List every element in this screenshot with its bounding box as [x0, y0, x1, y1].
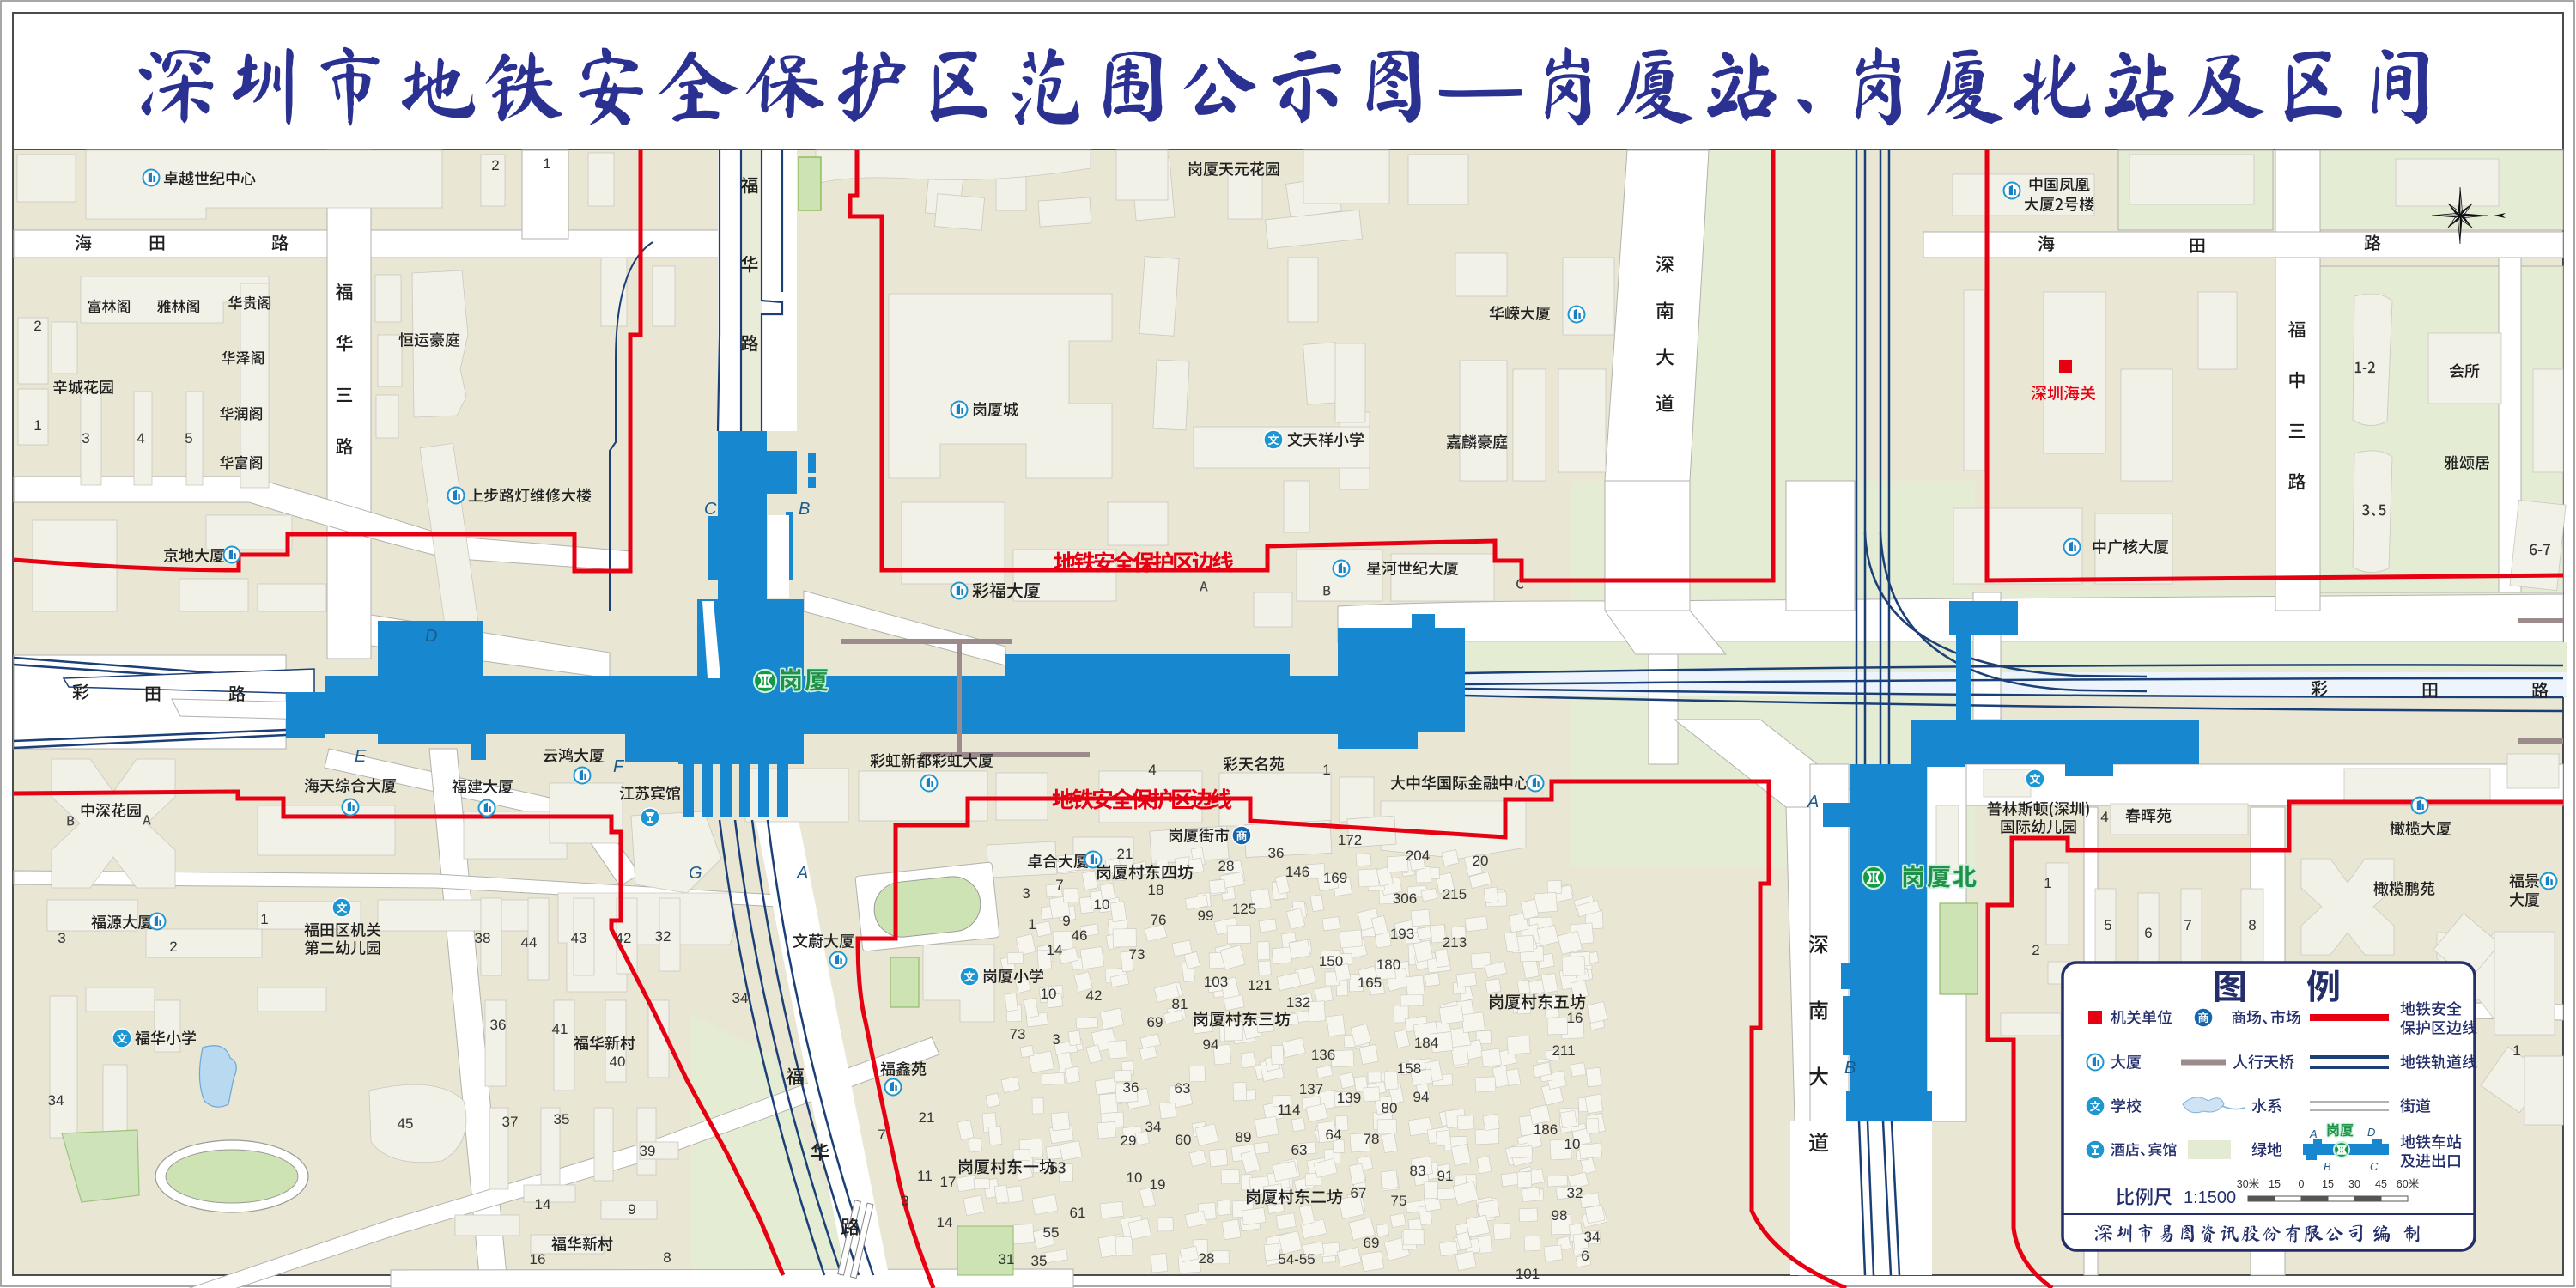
svg-text:A: A [2309, 1127, 2318, 1140]
svg-text:63: 63 [1291, 1142, 1308, 1158]
svg-text:61: 61 [1070, 1205, 1086, 1221]
svg-text:136: 136 [1311, 1047, 1335, 1063]
svg-text:30: 30 [2348, 1178, 2360, 1190]
svg-text:14: 14 [1047, 942, 1063, 958]
svg-text:99: 99 [1198, 908, 1214, 924]
svg-text:4: 4 [1148, 762, 1156, 778]
svg-text:17: 17 [940, 1174, 957, 1190]
svg-text:35: 35 [1031, 1253, 1048, 1269]
svg-text:158: 158 [1397, 1060, 1421, 1077]
svg-text:6: 6 [1581, 1248, 1589, 1264]
svg-text:7: 7 [2184, 917, 2191, 933]
svg-text:41: 41 [552, 1021, 568, 1037]
svg-text:94: 94 [1413, 1089, 1430, 1105]
svg-text:80: 80 [1382, 1100, 1398, 1116]
svg-text:2: 2 [2032, 942, 2039, 958]
svg-text:4: 4 [137, 430, 144, 447]
svg-text:306: 306 [1393, 890, 1417, 907]
svg-text:94: 94 [1203, 1036, 1219, 1053]
svg-text:D: D [425, 627, 437, 646]
svg-text:89: 89 [1236, 1129, 1252, 1145]
svg-text:45: 45 [2375, 1178, 2387, 1190]
svg-text:73: 73 [1010, 1026, 1026, 1042]
svg-text:8: 8 [2248, 917, 2256, 933]
svg-text:75: 75 [1391, 1193, 1407, 1209]
svg-text:E: E [355, 747, 367, 766]
svg-text:73: 73 [1129, 946, 1145, 963]
svg-text:165: 165 [1358, 975, 1382, 991]
svg-text:9: 9 [1062, 913, 1070, 929]
svg-text:67: 67 [1351, 1185, 1367, 1201]
svg-text:46: 46 [1072, 927, 1088, 944]
svg-text:103: 103 [1204, 974, 1228, 990]
svg-text:10: 10 [1564, 1136, 1581, 1152]
svg-text:1: 1 [33, 417, 41, 434]
svg-text:7: 7 [878, 1127, 885, 1143]
svg-text:60米: 60米 [2397, 1178, 2420, 1190]
svg-text:1:1500: 1:1500 [2184, 1188, 2236, 1207]
svg-text:55: 55 [1043, 1224, 1060, 1241]
svg-text:A: A [796, 864, 808, 883]
svg-text:C: C [704, 500, 717, 519]
svg-text:G: G [689, 864, 702, 883]
svg-text:28: 28 [1218, 858, 1235, 874]
svg-text:1: 1 [260, 911, 268, 927]
svg-text:B: B [2324, 1160, 2331, 1173]
svg-text:81: 81 [1172, 996, 1188, 1012]
svg-text:4: 4 [2100, 809, 2108, 825]
svg-text:98: 98 [1552, 1207, 1568, 1224]
svg-text:16: 16 [530, 1251, 546, 1267]
svg-text:180: 180 [1376, 957, 1400, 973]
svg-text:5: 5 [2104, 917, 2111, 933]
svg-text:11: 11 [917, 1168, 933, 1184]
svg-text:20: 20 [1473, 853, 1489, 869]
svg-text:78: 78 [1364, 1131, 1380, 1147]
svg-text:193: 193 [1390, 926, 1414, 942]
svg-text:45: 45 [398, 1115, 414, 1132]
svg-text:34: 34 [48, 1092, 64, 1109]
svg-text:1: 1 [1322, 762, 1330, 778]
svg-text:10: 10 [1094, 896, 1110, 913]
svg-text:21: 21 [919, 1109, 935, 1126]
svg-text:3: 3 [901, 1193, 908, 1209]
svg-text:B: B [799, 500, 810, 519]
svg-text:0: 0 [2299, 1178, 2305, 1190]
svg-text:39: 39 [640, 1143, 656, 1159]
svg-text:204: 204 [1406, 848, 1430, 864]
svg-text:1: 1 [1028, 916, 1036, 933]
svg-text:184: 184 [1414, 1035, 1438, 1051]
svg-text:14: 14 [937, 1214, 953, 1230]
svg-text:16: 16 [1567, 1010, 1583, 1026]
svg-text:213: 213 [1443, 934, 1467, 951]
svg-text:D: D [2367, 1126, 2375, 1139]
svg-text:42: 42 [616, 930, 632, 946]
svg-text:101: 101 [1516, 1266, 1540, 1282]
svg-text:64: 64 [1326, 1127, 1342, 1143]
svg-text:29: 29 [1121, 1133, 1137, 1149]
svg-text:3: 3 [82, 430, 89, 447]
svg-text:63: 63 [1175, 1080, 1191, 1097]
svg-text:169: 169 [1323, 870, 1347, 886]
svg-text:10: 10 [1041, 986, 1057, 1002]
svg-text:32: 32 [655, 928, 671, 945]
svg-text:8: 8 [663, 1249, 671, 1266]
svg-text:76: 76 [1151, 912, 1167, 928]
svg-text:1: 1 [2044, 875, 2051, 891]
svg-text:15: 15 [2322, 1178, 2334, 1190]
svg-text:34: 34 [732, 990, 749, 1006]
svg-text:146: 146 [1285, 864, 1309, 880]
svg-text:132: 132 [1286, 994, 1310, 1011]
svg-text:37: 37 [502, 1114, 519, 1130]
svg-text:2: 2 [491, 157, 499, 173]
svg-text:54-55: 54-55 [1278, 1251, 1315, 1267]
svg-text:215: 215 [1443, 886, 1467, 902]
svg-text:60: 60 [1176, 1132, 1192, 1148]
svg-text:91: 91 [1437, 1168, 1454, 1184]
svg-text:1: 1 [2512, 1042, 2520, 1059]
svg-text:69: 69 [1147, 1014, 1163, 1030]
svg-text:2: 2 [169, 939, 177, 955]
svg-text:35: 35 [554, 1111, 570, 1127]
svg-text:10: 10 [1127, 1170, 1143, 1186]
svg-text:83: 83 [1410, 1163, 1426, 1179]
svg-text:186: 186 [1534, 1121, 1558, 1138]
svg-text:19: 19 [1150, 1176, 1166, 1193]
svg-text:34: 34 [1145, 1119, 1162, 1135]
svg-text:32: 32 [1567, 1185, 1583, 1201]
svg-text:125: 125 [1232, 901, 1256, 917]
svg-text:28: 28 [1199, 1250, 1215, 1267]
svg-text:40: 40 [610, 1054, 626, 1070]
svg-text:38: 38 [475, 930, 491, 946]
svg-text:5: 5 [185, 430, 192, 447]
svg-text:69: 69 [1364, 1235, 1380, 1251]
svg-text:172: 172 [1338, 832, 1362, 848]
svg-text:C: C [2370, 1160, 2379, 1173]
svg-text:14: 14 [535, 1196, 551, 1212]
svg-text:43: 43 [571, 930, 587, 946]
svg-text:31: 31 [999, 1251, 1015, 1267]
svg-text:B: B [1844, 1059, 1856, 1078]
svg-text:21: 21 [1117, 846, 1133, 862]
svg-text:9: 9 [628, 1201, 635, 1218]
svg-text:F: F [613, 757, 625, 776]
svg-text:36: 36 [490, 1017, 507, 1033]
svg-text:150: 150 [1319, 953, 1343, 969]
svg-text:34: 34 [1584, 1229, 1601, 1245]
svg-text:A: A [1807, 793, 1819, 811]
svg-text:114: 114 [1277, 1102, 1300, 1118]
svg-text:121: 121 [1248, 977, 1272, 993]
svg-text:36: 36 [1123, 1079, 1139, 1096]
svg-text:139: 139 [1337, 1090, 1361, 1106]
svg-text:1: 1 [543, 155, 550, 172]
svg-text:6: 6 [2144, 925, 2152, 941]
svg-text:7: 7 [1055, 877, 1063, 893]
svg-text:211: 211 [1552, 1042, 1575, 1059]
svg-text:15: 15 [2269, 1178, 2281, 1190]
svg-text:30米: 30米 [2237, 1178, 2260, 1190]
svg-text:42: 42 [1086, 987, 1103, 1004]
svg-text:36: 36 [1268, 845, 1285, 861]
svg-text:137: 137 [1299, 1081, 1323, 1097]
svg-text:2: 2 [33, 318, 41, 334]
svg-text:3: 3 [1022, 885, 1030, 902]
svg-text:44: 44 [521, 934, 538, 951]
svg-text:18: 18 [1148, 882, 1164, 898]
svg-text:3: 3 [58, 930, 65, 946]
svg-text:3: 3 [1052, 1031, 1060, 1048]
